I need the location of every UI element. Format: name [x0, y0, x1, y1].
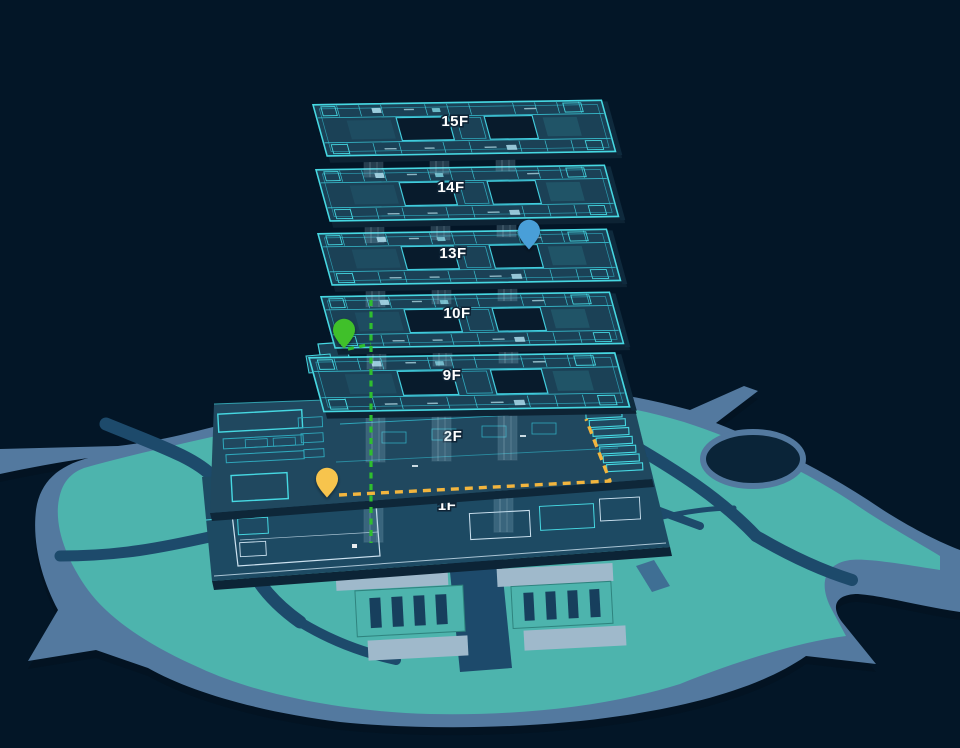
floor-15f-plate[interactable]	[312, 99, 623, 162]
floor-label-10f[interactable]: 10F	[443, 305, 470, 322]
floor-9f-plate[interactable]	[308, 352, 638, 419]
pond	[703, 432, 803, 486]
floor-label-15f[interactable]: 15F	[441, 113, 468, 130]
floor-label-14f[interactable]: 14F	[437, 179, 464, 196]
floor-label-13f[interactable]: 13F	[439, 245, 466, 262]
floor-13f[interactable]: 13F	[317, 228, 628, 291]
floor-13f-plate[interactable]	[317, 228, 628, 291]
comb-structure-right	[511, 581, 613, 628]
floor-14f-plate[interactable]	[315, 164, 626, 227]
floor-15f[interactable]: 15F	[312, 99, 623, 162]
floor-label-9f[interactable]: 9F	[443, 367, 462, 384]
floor-14f[interactable]: 14F	[315, 164, 626, 227]
map-canvas[interactable]: 1F	[0, 0, 960, 748]
comb-structure-left	[355, 585, 465, 637]
